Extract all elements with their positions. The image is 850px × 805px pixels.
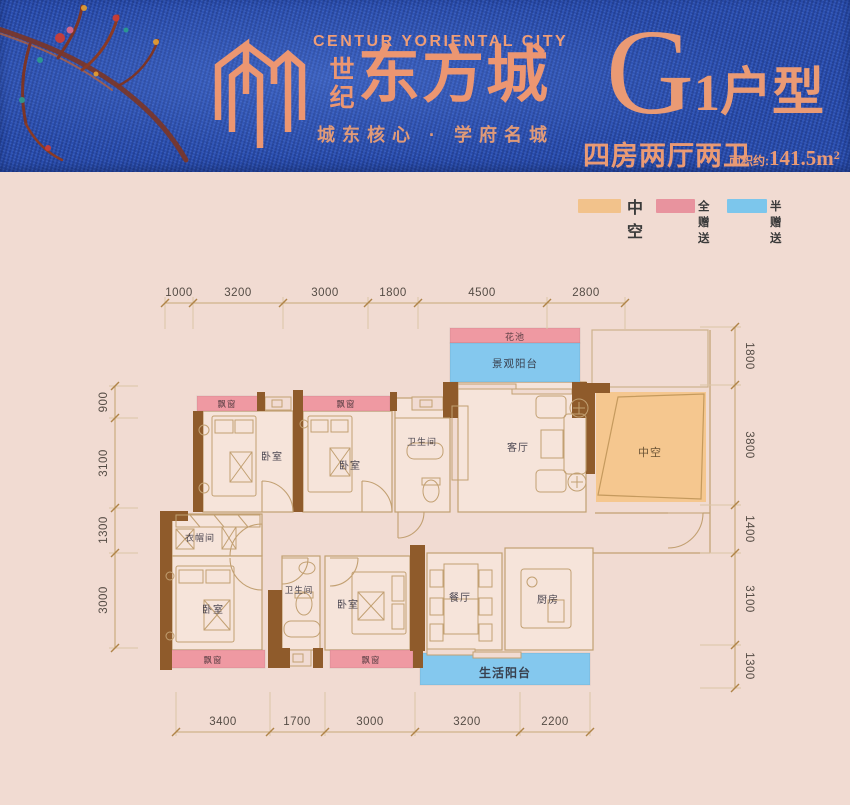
dim-left-2: 3100: [98, 449, 110, 477]
dim-bottom-2: 1700: [283, 716, 311, 728]
unit-area: 面积约:141.5m2: [729, 146, 840, 171]
dim-right-1: 1800: [743, 342, 755, 370]
dim-bottom-1: 3400: [209, 716, 237, 728]
room-label-hollow: 中空: [638, 445, 662, 459]
unit-type-suffix: 1户型: [694, 66, 824, 122]
dim-right-3: 1400: [743, 515, 755, 543]
dim-top-3: 3000: [311, 287, 339, 299]
dim-bottom-3: 3000: [356, 716, 384, 728]
embroidery-branch-decoration: [0, 0, 220, 172]
brand-logo-mm-monogram: [200, 28, 312, 158]
floor-plan: 1000 3200 3000 1800 4500 2800 3400 1700 …: [0, 170, 850, 805]
brand-tagline: 城东核心 · 学府名城: [317, 121, 554, 147]
unit-rooms-description: 四房两厅两卫: [583, 134, 751, 173]
dim-left-1: 900: [98, 392, 110, 413]
area-value: 141.5m: [769, 146, 834, 170]
room-label-bay-window-1: 飘窗: [217, 399, 236, 409]
room-label-living: 客厅: [507, 441, 529, 454]
header-banner: CENTUR YORIENTAL CITY 世纪 东方城 城东核心 · 学府名城…: [0, 0, 850, 172]
room-label-dining: 餐厅: [449, 591, 471, 604]
dim-top-4: 1800: [379, 287, 407, 299]
room-label-flower-bed: 花池: [505, 331, 525, 342]
brand-chinese-large: 东方城: [358, 44, 550, 108]
room-label-bedroom-2: 卧室: [339, 459, 361, 472]
room-label-bathroom-1: 卫生间: [407, 436, 437, 447]
room-label-bay-window-2: 飘窗: [336, 399, 355, 409]
brand-chinese-small: 世纪: [327, 56, 357, 112]
room-label-bedroom-1: 卧室: [261, 450, 283, 463]
area-label: 面积约:: [729, 154, 769, 168]
room-label-bedroom-3: 卧室: [202, 603, 224, 616]
dim-bottom-5: 2200: [541, 716, 569, 728]
unit-type-letter: G: [606, 12, 694, 134]
room-label-bay-window-3: 飘窗: [203, 655, 222, 665]
room-label-bay-window-4: 飘窗: [361, 655, 380, 665]
page: { "header": { "brand_en": "CENTUR YORIEN…: [0, 0, 850, 805]
dim-right-2: 3800: [743, 431, 755, 459]
dim-top-5: 4500: [468, 287, 496, 299]
area-superscript: 2: [834, 148, 840, 162]
room-label-kitchen: 厨房: [537, 593, 559, 606]
dim-top-1: 1000: [165, 287, 193, 299]
room-label-bathroom-2: 卫生间: [285, 585, 314, 595]
dim-right-4: 3100: [743, 585, 755, 613]
room-label-life-balcony: 生活阳台: [479, 665, 531, 680]
room-label-view-balcony: 景观阳台: [492, 357, 538, 370]
dim-top-2: 3200: [224, 287, 252, 299]
dim-bottom-4: 3200: [453, 716, 481, 728]
room-label-cloakroom: 衣帽间: [185, 532, 215, 543]
dim-left-4: 3000: [98, 586, 110, 614]
dim-right-5: 1300: [743, 652, 755, 680]
dim-left-3: 1300: [98, 516, 110, 544]
room-label-bedroom-4: 卧室: [337, 598, 359, 611]
dim-top-6: 2800: [572, 287, 600, 299]
